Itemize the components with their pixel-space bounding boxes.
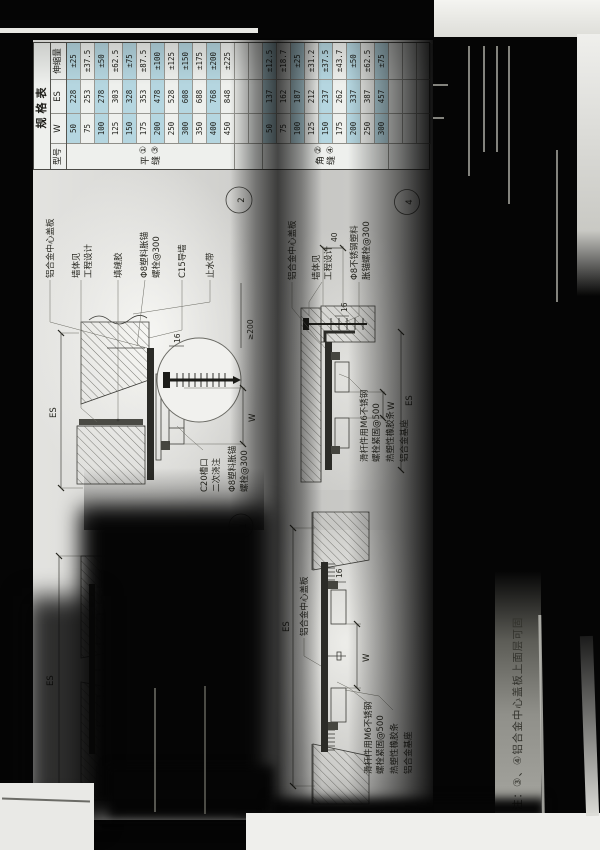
label-slider-2: 螺栓紧固@500 bbox=[371, 403, 382, 462]
label-anchor-bolt-2: 螺栓@300 bbox=[151, 236, 162, 278]
label-anchor-bolt-2: 螺栓@300 bbox=[239, 450, 250, 492]
label-slider-2: 螺栓紧固@500 bbox=[375, 715, 386, 774]
label-cover-plate: 铝合金中心盖板 bbox=[299, 576, 310, 636]
table-row bbox=[417, 43, 431, 143]
table-row: 125303±62.5 bbox=[109, 43, 123, 143]
label-wall-2: 工程设计 bbox=[83, 243, 94, 278]
label-anchor-bolt: Φ8塑料胀锚 bbox=[139, 231, 150, 278]
table-row bbox=[235, 43, 249, 143]
dim-w: W bbox=[387, 401, 397, 410]
label-wall-2: 工程设计 bbox=[323, 245, 334, 280]
label-staggered: (交错布置) bbox=[223, 729, 234, 770]
dim-w: W bbox=[362, 653, 372, 662]
label-wall: 墙体见 bbox=[71, 252, 82, 278]
detail-3-flat-joint: ES 滑杆件用M6不锈钢 螺栓紧固@500 bbox=[279, 502, 431, 814]
table-row bbox=[249, 43, 263, 143]
col-header-model: 型号 bbox=[51, 143, 66, 169]
page-edge-line bbox=[556, 150, 558, 302]
spec-table: 规格表 型号 W ES 伸缩量 ①③ 平缝 ②④ bbox=[33, 42, 430, 170]
detail-1-flat-joint: ES Φ8塑料胀锚 螺栓@300 (交错布置) ≥200 1 bbox=[37, 504, 259, 814]
table-row: 200337±50 bbox=[347, 43, 361, 143]
table-row: 100278±50 bbox=[95, 43, 109, 143]
table-header: 型号 W ES 伸缩量 bbox=[51, 43, 67, 169]
table-row: 175353±87.5 bbox=[137, 43, 151, 143]
table-row: 75162±18.7 bbox=[277, 43, 291, 143]
page-note: 注：③、④铝合金中心盖板上面层可固 bbox=[495, 550, 541, 816]
label-sealant: 填缝胶 bbox=[113, 252, 124, 278]
model-gap bbox=[235, 144, 263, 169]
dim-w: W bbox=[248, 413, 258, 422]
table-row: 250528±125 bbox=[165, 43, 179, 143]
label-cover-plate: 铝合金中心盖板 bbox=[45, 218, 56, 278]
table-title: 规格表 bbox=[34, 43, 51, 169]
dim-16: 16 bbox=[340, 302, 349, 312]
document-page: ES Φ8塑料胀锚 螺栓@300 (交错布置) ≥200 1 bbox=[33, 40, 553, 820]
dim-40: 40 bbox=[330, 232, 339, 242]
col-header-w: W bbox=[51, 113, 66, 143]
spec-table-rows: 50228±2575253±37.5100278±50125303±62.515… bbox=[67, 43, 431, 143]
label-alu-base: 铝合金基座 bbox=[403, 731, 414, 774]
table-row: 300608±150 bbox=[179, 43, 193, 143]
page-edge-sliver bbox=[580, 636, 599, 816]
label-slider: 滑杆件用M6不锈钢 bbox=[363, 702, 374, 774]
model-group-1: ①③ 平缝 bbox=[67, 144, 235, 169]
label-ss-anchor-2: 胀锚螺栓@300 bbox=[361, 221, 372, 280]
dim-es: ES bbox=[405, 395, 415, 406]
label-guide-wall: C15导墙 bbox=[177, 244, 188, 278]
label-anchor-bolt: Φ8塑料胀锚 bbox=[199, 723, 210, 770]
label-ss-anchor: Φ8不锈钢塑料 bbox=[349, 225, 360, 280]
table-row: 125212±31.2 bbox=[305, 43, 319, 143]
table-row: 75253±37.5 bbox=[81, 43, 95, 143]
sealant-strip bbox=[79, 419, 143, 425]
page-edge-highlight bbox=[0, 28, 258, 33]
label-waterstop: 止水带 bbox=[205, 252, 216, 278]
label-rubber-strip: 热塑性橡胶条 bbox=[389, 722, 400, 774]
table-row bbox=[403, 43, 417, 143]
dim-ge200: ≥200 bbox=[246, 319, 255, 340]
detail-number-2: 2 bbox=[237, 197, 247, 202]
table-row: 200478±100 bbox=[151, 43, 165, 143]
table-row: 50228±25 bbox=[67, 43, 81, 143]
table-row: 350688±175 bbox=[193, 43, 207, 143]
table-row: 250387±62.5 bbox=[361, 43, 375, 143]
label-rubber-strip: 热塑性橡胶条 bbox=[385, 410, 396, 462]
dim-16: 16 bbox=[173, 333, 182, 343]
background-white bbox=[577, 34, 600, 296]
label-slider: 滑杆件用M6不锈钢 bbox=[359, 390, 370, 462]
table-row: 150328±75 bbox=[123, 43, 137, 143]
col-header-extension: 伸缩量 bbox=[51, 43, 66, 79]
table-row: 175262±43.7 bbox=[333, 43, 347, 143]
dim-es: ES bbox=[282, 621, 292, 632]
model-column: ①③ 平缝 ②④ 角缝 bbox=[67, 143, 431, 169]
dim-ge200: ≥200 bbox=[182, 637, 191, 658]
label-wall: 墙体见 bbox=[311, 254, 322, 280]
table-row: 400768±200 bbox=[207, 43, 221, 143]
detail-number-4: 4 bbox=[405, 199, 415, 204]
label-notch-2: 二次浇注 bbox=[211, 457, 222, 492]
col-header-es: ES bbox=[51, 79, 66, 113]
label-cover-plate: 铝合金中心盖板 bbox=[287, 220, 298, 280]
table-row: 450848±225 bbox=[221, 43, 235, 143]
background-white bbox=[434, 0, 600, 37]
label-alu-base: 铝合金基座 bbox=[399, 419, 410, 462]
label-anchor-bolt: Φ8塑料胀锚 bbox=[227, 445, 238, 492]
table-row bbox=[389, 43, 403, 143]
detail-2-corner-joint: ES bbox=[37, 173, 259, 498]
dim-es: ES bbox=[46, 675, 56, 686]
detail-number-1: 1 bbox=[239, 523, 249, 528]
book-photo: ES Φ8塑料胀锚 螺栓@300 (交错布置) ≥200 1 bbox=[0, 0, 600, 850]
model-group-2: ②④ 角缝 bbox=[263, 144, 389, 169]
detail-4-corner-joint: 40 滑杆件用M6不锈钢 螺栓紧固@500 热塑性橡胶条 铝合金基座 铝合金中心… bbox=[279, 178, 431, 498]
table-row: 100187±25 bbox=[291, 43, 305, 143]
label-anchor-bolt-2: 螺栓@300 bbox=[211, 728, 222, 770]
dim-es: ES bbox=[49, 407, 59, 418]
table-row: 50137±12.5 bbox=[263, 43, 277, 143]
table-row: 300457±75 bbox=[375, 43, 389, 143]
paper: ES Φ8塑料胀锚 螺栓@300 (交错布置) ≥200 1 bbox=[33, 40, 433, 820]
dim-16: 16 bbox=[335, 568, 344, 578]
label-notch: C20槽口 bbox=[199, 458, 210, 492]
table-row: 150237±37.5 bbox=[319, 43, 333, 143]
